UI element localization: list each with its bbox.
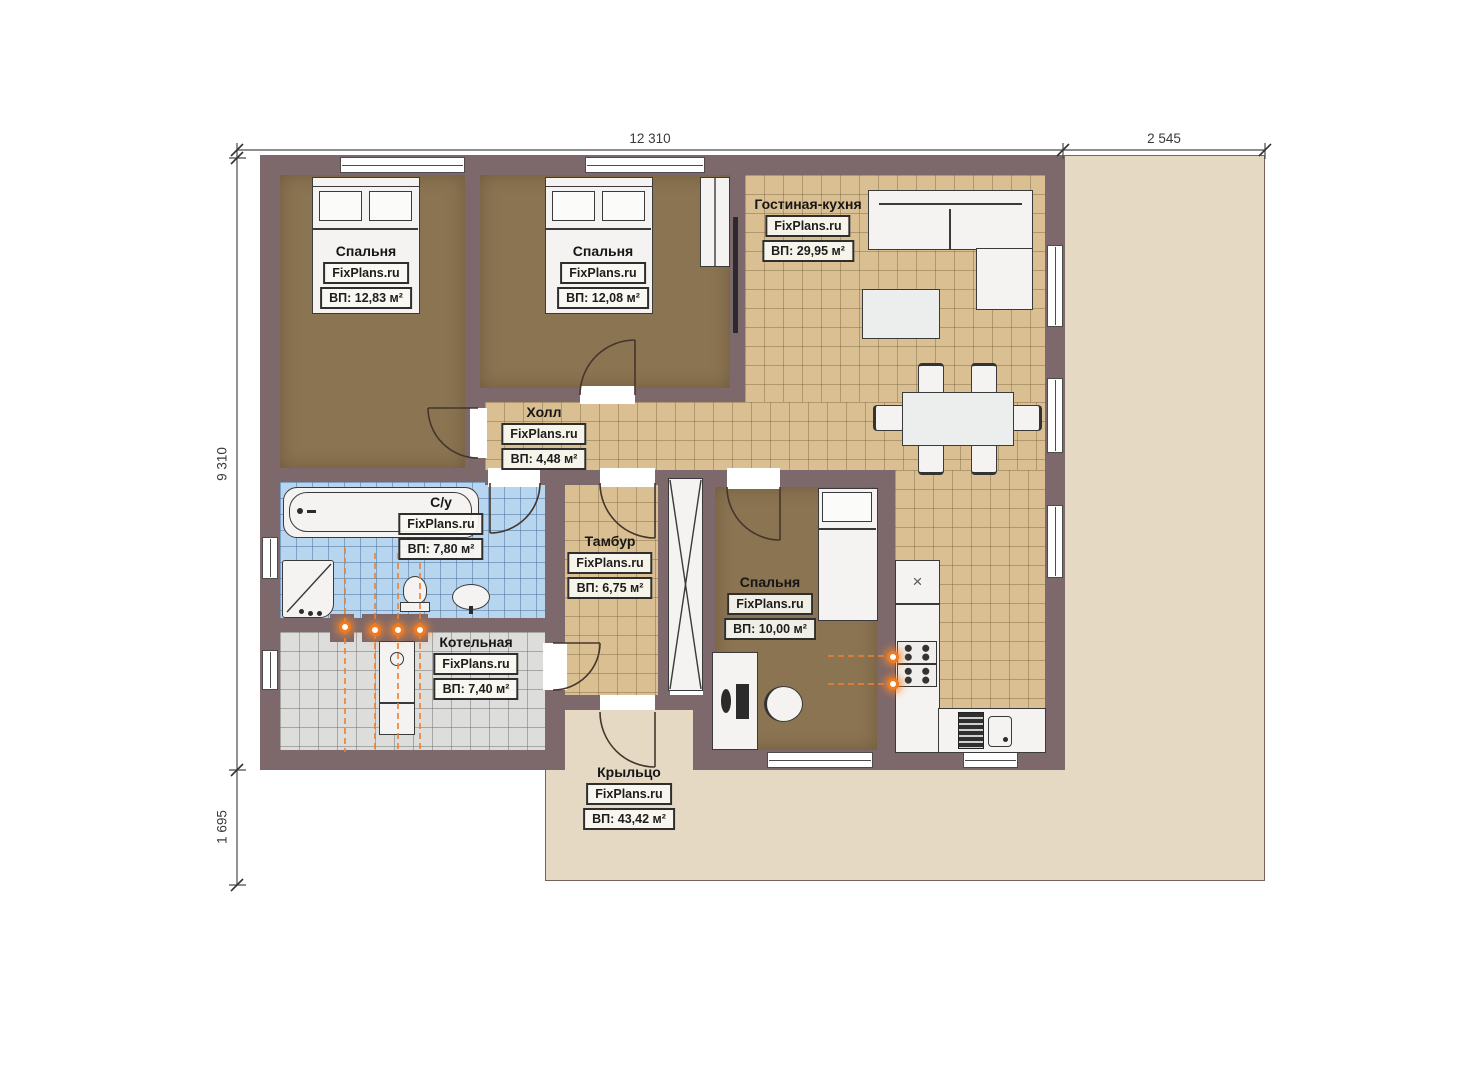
wall-bedroom3-right [877, 487, 895, 750]
room-label-bedroom-1: Спальня FixPlans.ru ВП: 12,83 м² [320, 243, 412, 309]
shower-head-dot-3 [317, 611, 322, 616]
window-living-right-2 [1047, 378, 1063, 453]
area-tag: ВП: 4,48 м² [502, 448, 587, 470]
bed-2-headboard [545, 177, 653, 187]
door-opening-bedroom2 [580, 386, 635, 404]
wardrobe-bedroom2 [700, 177, 730, 267]
watermark-tag: FixPlans.ru [323, 262, 408, 284]
wall-bedroom1-bottom [280, 468, 485, 482]
shower-head-dot-2 [308, 611, 313, 616]
bed-2-pillow-right [602, 191, 645, 221]
area-tag: ВП: 7,40 м² [434, 678, 519, 700]
area-tag: ВП: 12,83 м² [320, 287, 412, 309]
boiler-unit [379, 641, 415, 703]
room-name: Тамбур [567, 533, 652, 549]
dining-table [902, 392, 1014, 446]
dining-chair-bottom-2 [971, 443, 997, 475]
desk-speaker [721, 689, 731, 713]
desk-chair [764, 686, 803, 722]
room-name: Крыльцо [583, 764, 675, 780]
floor-plan-canvas: × [0, 0, 1473, 1080]
area-tag: ВП: 43,42 м² [583, 808, 675, 830]
watermark-tag: FixPlans.ru [560, 262, 645, 284]
door-opening-bedroom3 [727, 468, 780, 489]
watermark-tag: FixPlans.ru [765, 215, 850, 237]
room-name: Котельная [433, 634, 518, 650]
bed-3-blanket-line [819, 528, 876, 530]
toilet-bowl [403, 576, 427, 604]
boiler-unit-lower [379, 703, 415, 735]
bed-3-pillow [822, 492, 872, 522]
dining-chair-right [1010, 405, 1042, 431]
sofa-seat-line [949, 209, 951, 249]
watermark-tag: FixPlans.ru [727, 593, 812, 615]
shower-head-dot-1 [299, 609, 304, 614]
watermark-tag: FixPlans.ru [398, 513, 483, 535]
room-label-living-kitchen: Гостиная-кухня FixPlans.ru ВП: 29,95 м² [754, 196, 861, 262]
window-bathroom-left [262, 537, 278, 579]
area-tag: ВП: 12,08 м² [557, 287, 649, 309]
bed-1-pillow-right [369, 191, 412, 221]
window-boiler-left [262, 650, 278, 690]
room-name: Спальня [557, 243, 649, 259]
bathroom-sink-tap [469, 606, 473, 614]
radiator-point-2 [369, 624, 381, 636]
dimension-top-main: 12 310 [629, 131, 670, 146]
desk-monitor [736, 684, 749, 719]
dining-chair-bottom-1 [918, 443, 944, 475]
area-tag: ВП: 6,75 м² [568, 577, 653, 599]
window-bedroom1-top [340, 157, 465, 173]
room-name: Спальня [320, 243, 412, 259]
toilet-tank [400, 602, 430, 612]
watermark-tag: FixPlans.ru [586, 783, 671, 805]
radiator-point-3 [392, 624, 404, 636]
radiator-point-1 [339, 621, 351, 633]
area-tag: ВП: 29,95 м² [762, 240, 854, 262]
sofa-chaise [976, 248, 1033, 310]
bathtub-spout [307, 510, 316, 513]
room-name: Холл [501, 404, 586, 420]
dimension-top-right: 2 545 [1147, 131, 1181, 146]
kitchen-fridge: × [895, 560, 940, 604]
room-name: Спальня [724, 574, 816, 590]
desk-bedroom3 [712, 652, 758, 750]
door-opening-boiler [543, 643, 567, 690]
dining-chair-top-2 [971, 363, 997, 395]
radiator-point-4 [414, 624, 426, 636]
bed-1-blanket-line [313, 228, 418, 230]
room-label-porch: Крыльцо FixPlans.ru ВП: 43,42 м² [583, 764, 675, 830]
room-label-bedroom-3: Спальня FixPlans.ru ВП: 10,00 м² [724, 574, 816, 640]
dining-chair-top-1 [918, 363, 944, 395]
room-label-hall: Холл FixPlans.ru ВП: 4,48 м² [501, 404, 586, 470]
sofa-back-line [879, 203, 1022, 205]
watermark-tag: FixPlans.ru [433, 653, 518, 675]
wardrobe-tambour [668, 478, 703, 691]
kitchen-sink-basin [988, 716, 1012, 747]
room-name: С/у [398, 494, 483, 510]
kitchen-sink-drain [1003, 737, 1008, 742]
wall-bedroom3-top [670, 470, 895, 487]
radiator-point-5 [887, 651, 899, 663]
room-label-bedroom-2: Спальня FixPlans.ru ВП: 12,08 м² [557, 243, 649, 309]
window-bedroom2-top [585, 157, 705, 173]
kitchen-sink-drainer [958, 712, 984, 749]
area-tag: ВП: 10,00 м² [724, 618, 816, 640]
dimension-left-bottom: 1 695 [215, 810, 230, 844]
bed-1-headboard [312, 177, 420, 187]
bed-2-blanket-line [546, 228, 651, 230]
porch-recess [565, 710, 693, 772]
bed-2-pillow-left [552, 191, 595, 221]
area-tag: ВП: 7,80 м² [399, 538, 484, 560]
watermark-tag: FixPlans.ru [501, 423, 586, 445]
door-opening-tambour [600, 468, 655, 487]
window-living-right-3 [1047, 505, 1063, 578]
bed-single-3 [818, 488, 878, 621]
sofa-main [868, 190, 1033, 250]
dining-chair-left [873, 405, 905, 431]
room-label-tambour: Тамбур FixPlans.ru ВП: 6,75 м² [567, 533, 652, 599]
shower [282, 560, 334, 618]
boiler-dial [390, 652, 404, 666]
bathtub-tap [297, 508, 303, 514]
window-bedroom3-bottom [767, 752, 873, 768]
room-label-bathroom: С/у FixPlans.ru ВП: 7,80 м² [398, 494, 483, 560]
stove-burners-2 [897, 664, 937, 687]
watermark-tag: FixPlans.ru [567, 552, 652, 574]
door-opening-bathroom [488, 468, 540, 487]
dimension-left-main: 9 310 [215, 447, 230, 481]
room-label-boiler-room: Котельная FixPlans.ru ВП: 7,40 м² [433, 634, 518, 700]
radiator-point-6 [887, 678, 899, 690]
stove-burners-1 [897, 641, 937, 664]
window-kitchen-bottom [963, 752, 1018, 768]
bed-1-pillow-left [319, 191, 362, 221]
tv-panel [733, 217, 738, 333]
window-living-right-1 [1047, 245, 1063, 327]
wall-bathroom-tambour [545, 482, 565, 770]
coffee-table [862, 289, 940, 339]
room-name: Гостиная-кухня [754, 196, 861, 212]
door-opening-bedroom1 [470, 408, 487, 458]
